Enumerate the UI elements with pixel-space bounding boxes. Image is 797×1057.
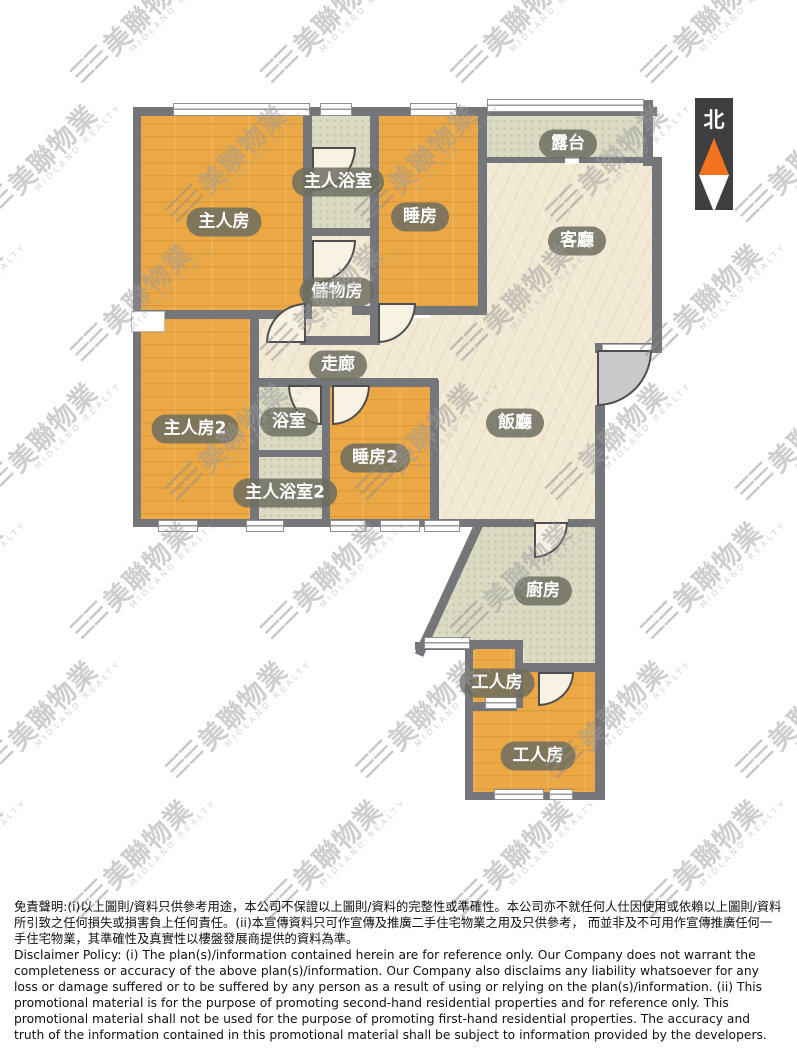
watermark-name-en: MIDLAND REALTY — [128, 0, 218, 54]
disclaimer-text-zh: 免責聲明:(i)以上圖則/資料只供參考用途，本公司不保證以上圖則/資料的完整性或… — [14, 899, 784, 947]
room-label-master-bathroom: 主人浴室 — [292, 168, 384, 197]
floorplan-page: 主人房 主人浴室 睡房 露台 客廳 儲物房 走廊 主人房2 浴室 睡房2 主人浴… — [0, 0, 797, 1057]
watermark-name-zh: 美聯物業 — [98, 795, 199, 896]
watermark-name-zh: 美聯物業 — [98, 0, 199, 62]
watermark: ☰☰美聯物業MIDLAND REALTY — [632, 0, 789, 96]
watermark-name-en: MIDLAND REALTY — [698, 520, 788, 610]
watermark-name-en: MIDLAND REALTY — [318, 0, 408, 54]
watermark-name-zh: 美聯物業 — [478, 0, 579, 62]
room-label-servant-room-large: 工人房 — [501, 742, 576, 771]
wall — [305, 228, 377, 236]
midland-logo-icon: ☰☰ — [730, 458, 778, 506]
window — [487, 99, 644, 112]
midland-logo-icon: ☰☰ — [730, 180, 778, 228]
window — [330, 520, 366, 532]
room-label-master-bedroom-2: 主人房2 — [152, 415, 239, 444]
watermark: ☰☰美聯物業MIDLAND REALTY — [0, 357, 123, 514]
window — [173, 103, 310, 116]
watermark-name-en: MIDLAND REALTY — [33, 659, 123, 749]
room-label-bedroom-2: 睡房2 — [340, 444, 410, 473]
room-label-kitchen: 廚房 — [514, 577, 572, 606]
watermark-name-en: MIDLAND REALTY — [0, 242, 28, 332]
watermark: ☰☰美聯物業MIDLAND REALTY — [0, 218, 28, 375]
watermark-name-en: MIDLAND REALTY — [318, 798, 408, 888]
wall — [465, 640, 473, 800]
wall — [300, 336, 380, 345]
wall — [430, 380, 439, 522]
wall — [254, 450, 322, 457]
north-indicator: 北 — [695, 98, 733, 210]
midland-logo-icon: ☰☰ — [635, 41, 683, 89]
wall — [523, 663, 604, 672]
watermark-name-en: MIDLAND REALTY — [0, 0, 28, 54]
watermark-name-zh: 美聯物業 — [288, 795, 389, 896]
watermark: ☰☰美聯物業MIDLAND REALTY — [0, 79, 123, 236]
watermark-name-en: MIDLAND REALTY — [793, 381, 797, 471]
midland-logo-icon: ☰☰ — [65, 319, 113, 367]
watermark: ☰☰美聯物業MIDLAND REALTY — [157, 635, 314, 792]
north-arrow-icon — [695, 138, 733, 212]
watermark-name-en: MIDLAND REALTY — [508, 0, 598, 54]
midland-logo-icon: ☰☰ — [0, 736, 18, 784]
watermark-name-en: MIDLAND REALTY — [698, 242, 788, 332]
watermark-name-en: MIDLAND REALTY — [698, 798, 788, 888]
room-label-master-bathroom-2: 主人浴室2 — [233, 479, 337, 508]
watermark: ☰☰美聯物業MIDLAND REALTY — [632, 496, 789, 653]
watermark-name-zh: 美聯物業 — [3, 378, 104, 479]
watermark-name-en: MIDLAND REALTY — [603, 659, 693, 749]
midland-logo-icon: ☰☰ — [350, 736, 398, 784]
window — [246, 520, 284, 532]
watermark-name-en: MIDLAND REALTY — [128, 520, 218, 610]
watermark-name-en: MIDLAND REALTY — [0, 520, 28, 610]
window — [380, 520, 420, 532]
north-label: 北 — [695, 104, 733, 134]
watermark: ☰☰美聯物業MIDLAND REALTY — [0, 496, 28, 653]
watermark-name-zh: 美聯物業 — [0, 0, 9, 62]
midland-logo-icon: ☰☰ — [255, 597, 303, 645]
room-label-master-bedroom: 主人房 — [187, 208, 262, 237]
watermark-name-zh: 美聯物業 — [0, 795, 9, 896]
watermark: ☰☰美聯物業MIDLAND REALTY — [727, 79, 797, 236]
wall — [643, 100, 653, 162]
watermark-name-en: MIDLAND REALTY — [128, 798, 218, 888]
watermark-name-zh: 美聯物業 — [668, 239, 769, 340]
wall-recess — [131, 311, 165, 332]
room-label-storage: 儲物房 — [300, 278, 375, 307]
watermark-name-en: MIDLAND REALTY — [793, 659, 797, 749]
watermark-name-en: MIDLAND REALTY — [0, 798, 28, 888]
entrance-door-arc — [597, 350, 652, 406]
watermark-name-zh: 美聯物業 — [763, 378, 797, 479]
watermark: ☰☰美聯物業MIDLAND REALTY — [252, 0, 409, 96]
watermark-name-en: MIDLAND REALTY — [793, 103, 797, 193]
wall — [568, 519, 604, 527]
midland-logo-icon: ☰☰ — [65, 41, 113, 89]
room-label-dining-room: 飯廳 — [486, 409, 544, 438]
window — [549, 789, 573, 800]
window — [424, 520, 460, 532]
room-label-corridor: 走廊 — [309, 351, 367, 380]
room-label-balcony: 露台 — [539, 130, 597, 159]
room-label-bedroom: 睡房 — [391, 203, 449, 232]
watermark-name-zh: 美聯物業 — [288, 0, 389, 62]
disclaimer: 免責聲明:(i)以上圖則/資料只供參考用途，本公司不保證以上圖則/資料的完整性或… — [14, 899, 784, 1043]
watermark-name-zh: 美聯物業 — [763, 656, 797, 757]
watermark: ☰☰美聯物業MIDLAND REALTY — [0, 0, 28, 96]
watermark-name-zh: 美聯物業 — [0, 239, 9, 340]
midland-logo-icon: ☰☰ — [65, 597, 113, 645]
watermark-name-zh: 美聯物業 — [668, 795, 769, 896]
watermark-name-en: MIDLAND REALTY — [508, 798, 598, 888]
midland-logo-icon: ☰☰ — [635, 597, 683, 645]
watermark-name-zh: 美聯物業 — [3, 656, 104, 757]
midland-logo-icon: ☰☰ — [160, 736, 208, 784]
watermark: ☰☰美聯物業MIDLAND REALTY — [727, 635, 797, 792]
watermark-name-en: MIDLAND REALTY — [318, 520, 408, 610]
window — [494, 789, 544, 800]
window — [485, 697, 517, 709]
midland-logo-icon: ☰☰ — [445, 41, 493, 89]
watermark: ☰☰美聯物業MIDLAND REALTY — [62, 0, 219, 96]
watermark-name-zh: 美聯物業 — [3, 100, 104, 201]
window — [424, 637, 470, 649]
watermark-name-en: MIDLAND REALTY — [223, 659, 313, 749]
window — [320, 103, 352, 116]
north-arrow-top — [699, 138, 729, 175]
midland-logo-icon: ☰☰ — [0, 458, 18, 506]
watermark-name-zh: 美聯物業 — [763, 100, 797, 201]
watermark-name-zh: 美聯物業 — [668, 517, 769, 618]
midland-logo-icon: ☰☰ — [730, 736, 778, 784]
watermark: ☰☰美聯物業MIDLAND REALTY — [727, 357, 797, 514]
midland-logo-icon: ☰☰ — [255, 41, 303, 89]
wall — [595, 405, 605, 800]
window — [158, 520, 198, 532]
wall — [352, 306, 378, 315]
disclaimer-text-en: Disclaimer Policy: (i) The plan(s)/infor… — [14, 947, 784, 1043]
wall — [652, 157, 662, 353]
room-label-living-room: 客廳 — [548, 227, 606, 256]
watermark: ☰☰美聯物業MIDLAND REALTY — [442, 0, 599, 96]
watermark-name-zh: 美聯物業 — [478, 795, 579, 896]
watermark-name-zh: 美聯物業 — [0, 517, 9, 618]
watermark-name-zh: 美聯物業 — [668, 0, 769, 62]
watermark-name-en: MIDLAND REALTY — [698, 0, 788, 54]
watermark: ☰☰美聯物業MIDLAND REALTY — [0, 635, 123, 792]
watermark-name-en: MIDLAND REALTY — [33, 381, 123, 471]
wall — [478, 107, 487, 315]
watermark-name-zh: 美聯物業 — [193, 656, 294, 757]
midland-logo-icon: ☰☰ — [0, 180, 18, 228]
window — [410, 103, 457, 116]
room-label-bathroom: 浴室 — [260, 408, 318, 437]
wall — [414, 306, 484, 315]
watermark-name-en: MIDLAND REALTY — [33, 103, 123, 193]
north-arrow-bottom — [699, 175, 729, 212]
room-label-servant-room-small: 工人房 — [460, 669, 535, 698]
